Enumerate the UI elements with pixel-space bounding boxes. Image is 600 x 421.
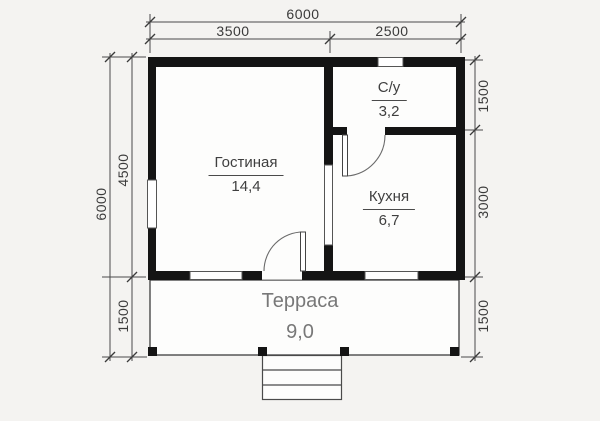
terrace-area: 9,0	[262, 321, 339, 344]
dim-left-total: 6000	[93, 187, 109, 220]
living-kitchen-passage	[325, 165, 333, 245]
terrace-label: Терраса 9,0	[262, 290, 339, 344]
steps-outline	[263, 356, 342, 400]
kitchen-name: Кухня	[363, 189, 415, 210]
dim-right-middle: 3000	[475, 185, 491, 218]
terrace-name: Терраса	[262, 290, 339, 313]
dim-right-lower: 1500	[475, 299, 491, 332]
post	[258, 347, 267, 356]
post	[340, 347, 349, 356]
bathroom-name: С/у	[372, 80, 407, 101]
kitchen-area: 6,7	[363, 210, 415, 230]
terrace-steps	[263, 356, 342, 400]
right-wall	[456, 57, 465, 280]
dim-top-right-span: 2500	[375, 23, 408, 39]
living-left-window	[148, 180, 157, 228]
dim-left-upper: 4500	[115, 153, 131, 186]
entrance-door-leaf	[301, 232, 306, 271]
dim-top-total: 6000	[286, 6, 319, 22]
entrance-door-opening	[262, 270, 302, 280]
bathroom-window	[378, 58, 403, 67]
top-wall	[148, 57, 465, 67]
living-room-name: Гостиная	[209, 155, 284, 176]
bathroom-door-leaf	[343, 135, 348, 176]
kitchen-window	[365, 272, 418, 280]
dim-top-left-span: 3500	[216, 23, 249, 39]
dim-right-upper: 1500	[475, 79, 491, 112]
floor-plan-drawing	[0, 0, 600, 421]
bathroom-door-opening	[347, 127, 385, 136]
post	[148, 347, 157, 356]
post	[450, 347, 459, 356]
bathroom-label: С/у 3,2	[372, 80, 407, 120]
left-wall	[148, 57, 156, 280]
living-room-label: Гостиная 14,4	[209, 155, 284, 195]
bathroom-area: 3,2	[372, 101, 407, 121]
kitchen-label: Кухня 6,7	[363, 189, 415, 229]
floor-plan: 6000 3500 2500 6000 4500 1500 1500 3000 …	[0, 0, 600, 421]
dim-left-lower: 1500	[115, 299, 131, 332]
living-bottom-window	[190, 272, 242, 280]
living-room-area: 14,4	[209, 176, 284, 196]
